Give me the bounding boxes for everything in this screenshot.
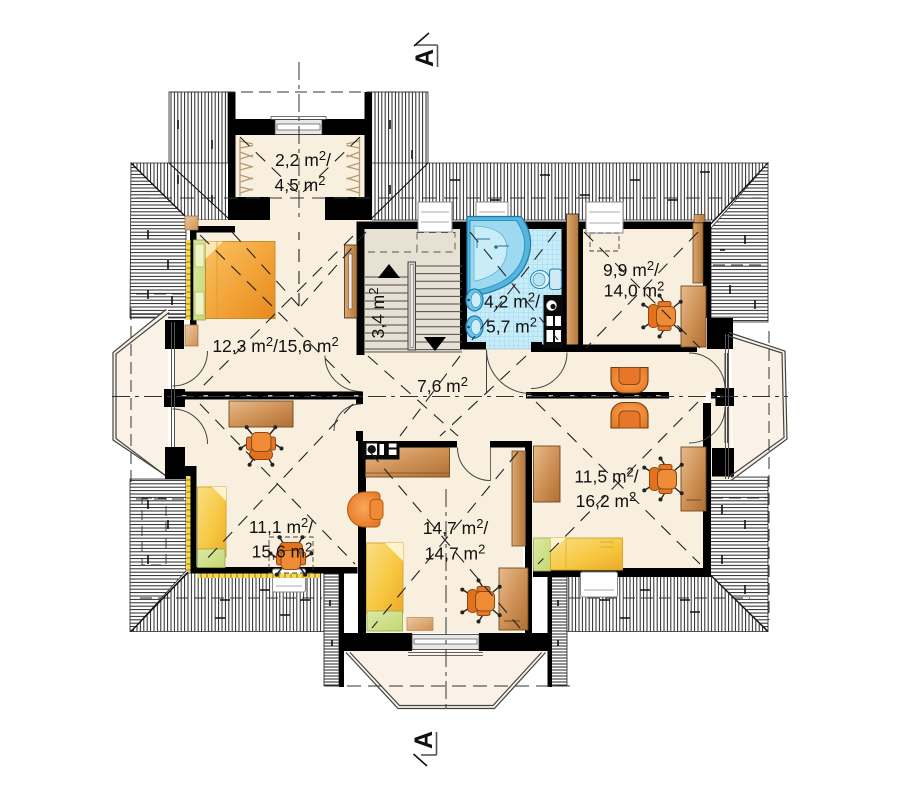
svg-text:4,5 m2: 4,5 m2: [274, 173, 325, 195]
svg-text:14,7 m2: 14,7 m2: [425, 542, 486, 564]
svg-text:16,2 m2: 16,2 m2: [576, 489, 637, 511]
svg-text:15,6 m2: 15,6 m2: [252, 540, 313, 562]
svg-text:12,3 m2/15,6 m2: 12,3 m2/15,6 m2: [212, 334, 338, 356]
svg-text:3,4 m2: 3,4 m2: [366, 287, 388, 338]
svg-text:A: A: [410, 731, 438, 749]
svg-text:14,0 m2: 14,0 m2: [604, 279, 665, 301]
svg-text:A: A: [411, 49, 439, 67]
svg-text:5,7 m2: 5,7 m2: [486, 315, 537, 337]
svg-text:7,6 m2: 7,6 m2: [417, 374, 468, 396]
